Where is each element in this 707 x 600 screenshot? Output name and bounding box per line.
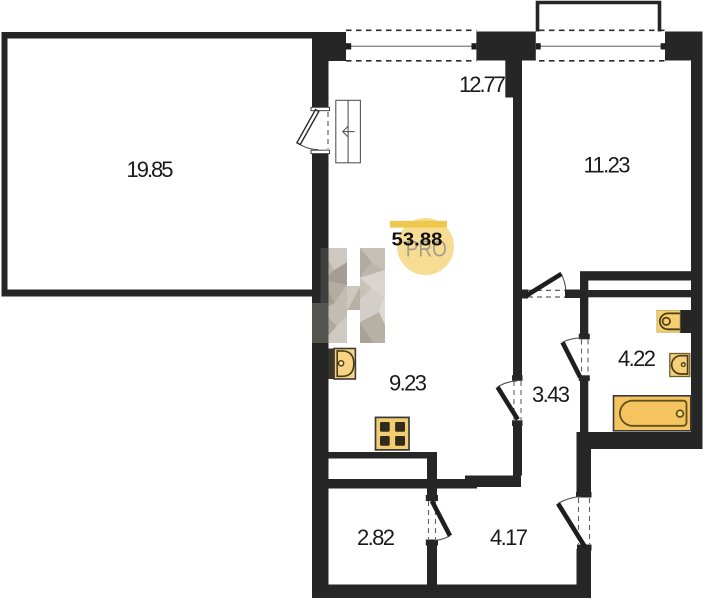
svg-text:4.17: 4.17 bbox=[490, 525, 528, 550]
svg-text:3.43: 3.43 bbox=[532, 382, 570, 407]
svg-text:19.85: 19.85 bbox=[127, 157, 174, 182]
svg-text:4.22: 4.22 bbox=[618, 346, 656, 371]
svg-text:11.23: 11.23 bbox=[584, 153, 631, 178]
svg-text:2.82: 2.82 bbox=[357, 525, 395, 550]
svg-text:9.23: 9.23 bbox=[389, 371, 427, 396]
svg-text:12.77: 12.77 bbox=[459, 72, 506, 97]
svg-text:53.88: 53.88 bbox=[392, 228, 443, 249]
